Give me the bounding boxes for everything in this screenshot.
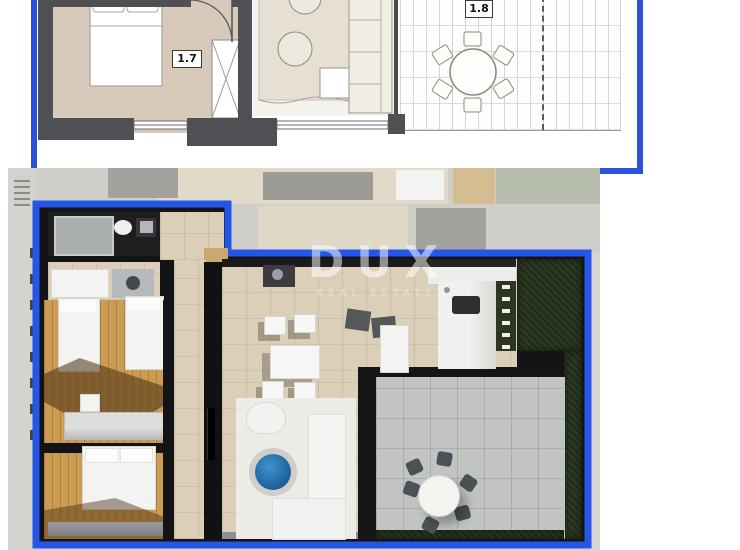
room-label-bedroom: 1.7 [172,50,202,68]
sofa-chaise [272,498,346,540]
floorplan-2d-frame: 1.7 1.8 [31,0,643,174]
facade-wall-2d [394,0,398,116]
pillow [127,298,160,310]
terrace-table [418,475,460,517]
wardrobe-icon [212,40,240,118]
floorplan-2d-drawing [37,0,637,156]
dining-chair [264,316,286,335]
pillow [120,448,153,463]
shower-icon [54,216,114,256]
render-3d: DUX REAL ESTATE [8,168,600,550]
hedge-garden [517,259,582,351]
coffee-table-icon [255,454,291,490]
nightstand [80,394,100,412]
dining-table-icon [270,345,320,379]
pillow [85,448,119,463]
room-label-terrace: 1.8 [465,0,493,18]
wall [358,371,376,539]
hedge-right [564,351,582,539]
bar-stool [345,308,372,331]
corridor-floor [174,260,206,539]
watermark-subtitle: REAL ESTATE [299,288,454,299]
washer-door [126,276,140,290]
toilet-icon [114,220,132,235]
bed-icon [90,0,162,86]
round-table-2d [278,32,312,66]
planter-flowers [502,283,510,349]
cabinet [51,269,109,298]
dresser [64,412,164,440]
dining-chair [294,314,316,333]
cooktop-sink [452,296,480,314]
real-estate-floorplan-image: 1.7 1.8 [0,0,740,550]
dining-table-icon [432,32,515,112]
hedge-bottom [376,530,564,539]
wall [163,300,174,539]
terrace-chair [436,451,453,467]
watermark: DUX REAL ESTATE [294,240,454,299]
sink-basin [140,221,153,233]
armchair [246,402,286,434]
kitchen-island [380,325,409,373]
tv-wall [204,262,222,539]
sofa-icon [349,0,392,113]
bottom-wall-3d [48,522,163,536]
watermark-title: DUX [304,240,454,286]
decor-bowl [272,269,283,280]
floorplan-2d: 1.7 1.8 [37,0,637,156]
pillow [60,300,96,312]
tv-icon [207,408,215,460]
